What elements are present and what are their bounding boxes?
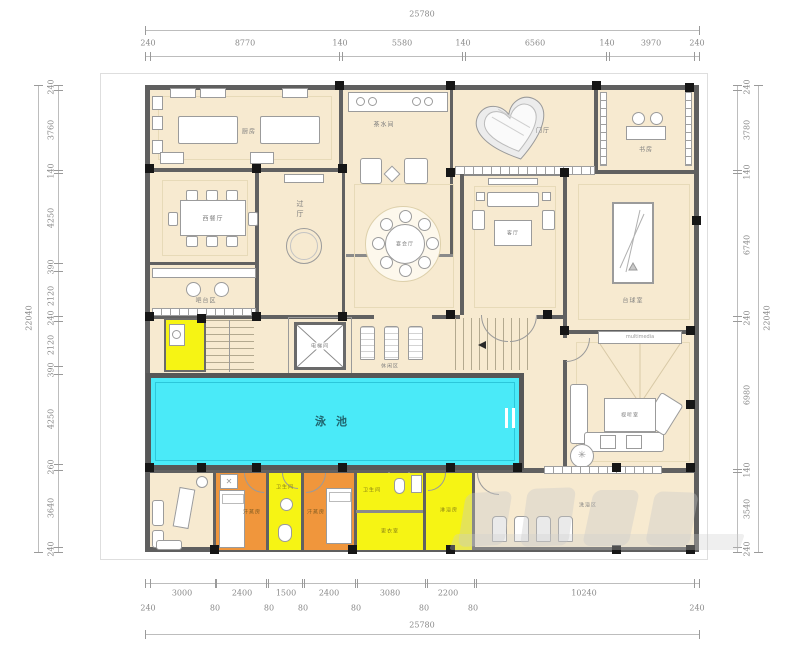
dim-bottom-wall: 240 bbox=[140, 604, 155, 613]
dim-top-total: 25780 bbox=[409, 10, 434, 19]
room-label-wc: 卫生间 bbox=[363, 487, 381, 494]
plant bbox=[196, 476, 208, 488]
dim-tick bbox=[150, 52, 151, 61]
column bbox=[446, 168, 455, 177]
pool-ladder bbox=[505, 408, 508, 428]
floor-plan-sheet: 25780 240 8770 140 5580 140 6560 140 397… bbox=[0, 0, 800, 666]
theater-seat bbox=[600, 435, 616, 449]
stair-divider bbox=[229, 320, 230, 372]
dim-top-seg: 140 bbox=[599, 39, 614, 48]
room-label-billiards: 台球室 bbox=[622, 296, 643, 305]
pool-lounger bbox=[360, 326, 375, 360]
room-label-pantry: 茶水间 bbox=[373, 120, 394, 129]
column bbox=[592, 81, 601, 90]
round-rug-inner bbox=[290, 232, 318, 260]
dim-left-seg: 2120 bbox=[47, 335, 56, 355]
dim-right-total: 22040 bbox=[763, 305, 772, 330]
dim-tick bbox=[266, 579, 267, 588]
dim-tick bbox=[54, 90, 63, 91]
dim-tick bbox=[145, 26, 146, 35]
dim-tick bbox=[34, 552, 43, 553]
wall bbox=[460, 174, 464, 315]
dim-tick bbox=[733, 547, 742, 548]
column bbox=[197, 314, 206, 323]
dim-bottom-wall: 240 bbox=[689, 604, 704, 613]
kitchen-sink bbox=[250, 152, 274, 164]
dim-tick bbox=[54, 547, 63, 548]
dim-bottom-room: 2200 bbox=[438, 589, 458, 598]
floor-lamp bbox=[542, 192, 551, 201]
dim-top-seg: 240 bbox=[689, 39, 704, 48]
bath-chair bbox=[536, 516, 551, 542]
dim-left-seg: 3640 bbox=[47, 498, 56, 518]
dim-right-seg: 240 bbox=[743, 310, 752, 325]
projection-lines bbox=[598, 344, 682, 404]
wall bbox=[339, 90, 343, 170]
pool-ladder bbox=[512, 408, 515, 428]
dim-tick bbox=[54, 321, 63, 322]
dim-tick bbox=[304, 579, 305, 588]
dim-bottom-room: 3080 bbox=[380, 589, 400, 598]
dim-left-seg: 4250 bbox=[47, 208, 56, 228]
dim-bottom-total: 25780 bbox=[409, 621, 434, 630]
kitchen-island bbox=[260, 116, 320, 144]
dim-top-seg: 240 bbox=[140, 39, 155, 48]
area-label-bathing: 洗浴区 bbox=[579, 502, 597, 509]
area-label-lounge: 休闲区 bbox=[381, 363, 399, 370]
dim-tick bbox=[145, 52, 146, 61]
dim-tick bbox=[54, 366, 63, 367]
wall bbox=[537, 315, 567, 319]
banquet-chair bbox=[418, 256, 431, 269]
banquet-chair bbox=[372, 237, 385, 250]
dim-tick bbox=[54, 85, 63, 86]
dim-line bbox=[145, 30, 699, 31]
room-label-pool: 泳池 bbox=[315, 413, 357, 429]
column bbox=[145, 312, 154, 321]
dim-right-seg: 140 bbox=[743, 462, 752, 477]
column bbox=[686, 545, 695, 554]
dim-tick bbox=[754, 552, 763, 553]
dim-line bbox=[758, 85, 759, 552]
room-label-theater: 视听室 bbox=[621, 412, 639, 419]
column bbox=[252, 463, 261, 472]
dim-tick bbox=[694, 579, 695, 588]
dim-left-seg: 3760 bbox=[47, 120, 56, 140]
dim-tick bbox=[699, 52, 700, 61]
bar-counter bbox=[152, 268, 256, 278]
kitchen-appliance bbox=[282, 88, 308, 98]
wall bbox=[342, 172, 345, 318]
dim-tick bbox=[54, 374, 63, 375]
dim-top-seg: 8770 bbox=[235, 39, 255, 48]
column bbox=[145, 164, 154, 173]
dim-tick bbox=[425, 579, 426, 588]
dim-right-seg: 6980 bbox=[743, 385, 752, 405]
column bbox=[692, 216, 701, 225]
floor-lamp bbox=[476, 192, 485, 201]
armchair bbox=[404, 158, 428, 184]
room-label-west-dining: 西餐厅 bbox=[202, 214, 223, 223]
dim-tick bbox=[699, 630, 700, 639]
dim-tick bbox=[54, 470, 63, 471]
room-label-locker: 更衣室 bbox=[381, 528, 399, 535]
dim-tick bbox=[465, 52, 466, 61]
dim-bottom-room: 2400 bbox=[232, 589, 252, 598]
dim-tick bbox=[609, 52, 610, 61]
dim-left-seg: 4250 bbox=[47, 409, 56, 429]
bath-chair bbox=[558, 516, 573, 542]
dim-right-seg: 240 bbox=[743, 541, 752, 556]
dim-left-seg: 390 bbox=[47, 259, 56, 274]
screen-label: multimedia bbox=[626, 334, 654, 340]
dim-tick bbox=[733, 472, 742, 473]
dining-chair bbox=[186, 236, 198, 247]
dim-top-seg: 140 bbox=[332, 39, 347, 48]
dim-line bbox=[737, 85, 738, 552]
dining-chair bbox=[206, 236, 218, 247]
sauna-pillow bbox=[329, 492, 351, 502]
bath-chair bbox=[514, 516, 529, 542]
column bbox=[446, 463, 455, 472]
wall bbox=[464, 174, 564, 176]
dim-tick bbox=[145, 579, 146, 588]
column bbox=[145, 463, 154, 472]
kitchen-appliance bbox=[200, 88, 226, 98]
sauna-table: ✕ bbox=[220, 474, 238, 489]
dim-line bbox=[145, 56, 699, 57]
banquet-chair bbox=[399, 264, 412, 277]
dim-left-seg: 140 bbox=[47, 163, 56, 178]
pool-lounger bbox=[384, 326, 399, 360]
room-label-bath-mid: 卫生间 bbox=[276, 484, 294, 491]
dim-tick bbox=[357, 579, 358, 588]
dim-left-seg: 240 bbox=[47, 541, 56, 556]
kitchen-island bbox=[178, 116, 238, 144]
room-label-shower: 淋浴房 bbox=[440, 507, 458, 514]
room-label-living: 客厅 bbox=[507, 230, 519, 237]
dim-bottom-room: 2400 bbox=[319, 589, 339, 598]
dim-tick bbox=[355, 579, 356, 588]
console-table bbox=[284, 174, 324, 183]
dim-bottom-room: 10240 bbox=[571, 589, 596, 598]
dim-line bbox=[145, 634, 699, 635]
bookshelf bbox=[685, 92, 692, 166]
column bbox=[446, 545, 455, 554]
room-label-passage: 过厅 bbox=[295, 200, 305, 220]
dim-top-seg: 3970 bbox=[641, 39, 661, 48]
tv-cabinet bbox=[488, 178, 538, 185]
wall bbox=[150, 168, 342, 172]
dim-tick bbox=[476, 579, 477, 588]
study-chair bbox=[632, 112, 645, 125]
lounge-sofa bbox=[156, 540, 182, 550]
column bbox=[686, 463, 695, 472]
column bbox=[543, 310, 552, 319]
column bbox=[252, 312, 261, 321]
column bbox=[252, 164, 261, 173]
billiard-cues bbox=[614, 204, 652, 282]
wash-basin bbox=[280, 498, 293, 511]
dim-bottom-wall: 80 bbox=[419, 604, 429, 613]
dim-top-seg: 140 bbox=[455, 39, 470, 48]
wash-stand bbox=[411, 475, 422, 493]
column bbox=[197, 463, 206, 472]
dim-tick bbox=[339, 52, 340, 61]
dim-tick bbox=[754, 85, 763, 86]
dim-tick bbox=[733, 552, 742, 553]
room-label-foyer: 门厅 bbox=[536, 126, 550, 135]
theater-seat bbox=[626, 435, 642, 449]
room-label-bar: 吧台区 bbox=[195, 296, 216, 305]
dim-line bbox=[38, 85, 39, 552]
dim-tick bbox=[216, 579, 217, 588]
column bbox=[338, 164, 347, 173]
fan-speaker: ✳ bbox=[570, 444, 594, 468]
column bbox=[685, 83, 694, 92]
room-label-sauna-left: 汗蒸房 bbox=[243, 509, 261, 516]
dim-tick bbox=[54, 170, 63, 171]
dim-tick bbox=[474, 579, 475, 588]
dim-top-seg: 6560 bbox=[525, 39, 545, 48]
column bbox=[338, 463, 347, 472]
wall bbox=[150, 262, 256, 265]
dim-tick bbox=[462, 52, 463, 61]
room-label-kitchen: 厨房 bbox=[242, 127, 256, 136]
cooktop-burner bbox=[424, 97, 433, 106]
wall bbox=[594, 90, 598, 172]
dim-tick bbox=[34, 85, 43, 86]
bath-chair bbox=[492, 516, 507, 542]
column bbox=[446, 310, 455, 319]
kitchen-appliance bbox=[170, 88, 196, 98]
dim-right-seg: 3540 bbox=[743, 499, 752, 519]
lounge-sofa bbox=[152, 500, 164, 526]
wall bbox=[563, 360, 567, 472]
dim-tick bbox=[145, 630, 146, 639]
dim-tick bbox=[302, 579, 303, 588]
dim-tick bbox=[733, 90, 742, 91]
toilet bbox=[394, 478, 405, 494]
dim-tick bbox=[54, 173, 63, 174]
cooktop-burner bbox=[412, 97, 421, 106]
dim-right-seg: 3780 bbox=[743, 120, 752, 140]
column bbox=[335, 81, 344, 90]
dim-top-seg: 5580 bbox=[392, 39, 412, 48]
dim-right-seg: 140 bbox=[743, 164, 752, 179]
banquet-chair bbox=[418, 218, 431, 231]
armchair bbox=[360, 158, 382, 184]
column bbox=[338, 312, 347, 321]
dim-tick bbox=[699, 26, 700, 35]
wall bbox=[563, 174, 567, 330]
dim-right-seg: 240 bbox=[743, 79, 752, 94]
dim-line bbox=[58, 85, 59, 552]
wall bbox=[594, 170, 699, 174]
study-chair bbox=[650, 112, 663, 125]
kitchen-sink bbox=[160, 152, 184, 164]
column bbox=[348, 545, 357, 554]
column bbox=[560, 326, 569, 335]
column bbox=[513, 463, 522, 472]
dim-tick bbox=[342, 52, 343, 61]
bookshelf bbox=[600, 92, 607, 166]
pool-lounger bbox=[408, 326, 423, 360]
dim-bottom-wall: 80 bbox=[298, 604, 308, 613]
banquet-chair bbox=[399, 210, 412, 223]
dim-tick bbox=[606, 52, 607, 61]
column bbox=[612, 545, 621, 554]
dim-tick bbox=[54, 552, 63, 553]
window bbox=[544, 466, 662, 474]
column bbox=[210, 545, 219, 554]
column bbox=[686, 400, 695, 409]
dim-tick bbox=[268, 579, 269, 588]
staircase bbox=[206, 320, 254, 372]
dining-chair bbox=[168, 212, 178, 226]
dim-bottom-wall: 80 bbox=[210, 604, 220, 613]
sauna-pillow bbox=[222, 494, 244, 504]
side-chair bbox=[542, 210, 555, 230]
dim-left-seg: 2120 bbox=[47, 286, 56, 306]
dim-left-seg: 260 bbox=[47, 459, 56, 474]
dim-tick bbox=[54, 263, 63, 264]
dim-bottom-wall: 80 bbox=[351, 604, 361, 613]
dim-tick bbox=[54, 316, 63, 317]
dim-left-seg: 390 bbox=[47, 362, 56, 377]
theater-sofa bbox=[584, 432, 664, 452]
wall bbox=[255, 172, 259, 318]
dim-left-seg: 240 bbox=[47, 79, 56, 94]
dim-tick bbox=[733, 469, 742, 470]
room-label-sauna-right: 汗蒸房 bbox=[307, 509, 325, 516]
cooktop-burner bbox=[356, 97, 365, 106]
dining-chair bbox=[226, 236, 238, 247]
dim-bottom-wall: 80 bbox=[468, 604, 478, 613]
dim-tick bbox=[699, 579, 700, 588]
dim-tick bbox=[54, 464, 63, 465]
dim-tick bbox=[733, 316, 742, 317]
toilet bbox=[278, 524, 292, 542]
utility-basin bbox=[172, 330, 181, 339]
cooktop-burner bbox=[368, 97, 377, 106]
kitchen-cabinet bbox=[152, 116, 163, 130]
dim-line bbox=[145, 583, 699, 584]
kitchen-cabinet bbox=[152, 96, 163, 110]
banquet-chair bbox=[426, 237, 439, 250]
dim-tick bbox=[54, 271, 63, 272]
room-label-study: 书房 bbox=[639, 145, 653, 154]
side-chair bbox=[472, 210, 485, 230]
sofa bbox=[487, 192, 539, 207]
dim-bottom-wall: 80 bbox=[264, 604, 274, 613]
column bbox=[612, 463, 621, 472]
dim-tick bbox=[694, 52, 695, 61]
dim-left-seg: 240 bbox=[47, 310, 56, 325]
room-label-elevator: 电梯间 bbox=[310, 343, 330, 350]
direction-arrow bbox=[478, 341, 486, 349]
room-label-banquet: 宴会厅 bbox=[396, 241, 414, 248]
dim-tick bbox=[733, 173, 742, 174]
column bbox=[446, 81, 455, 90]
dim-tick bbox=[150, 579, 151, 588]
dim-tick bbox=[733, 170, 742, 171]
wall bbox=[472, 472, 475, 550]
column bbox=[560, 168, 569, 177]
dining-chair bbox=[248, 212, 258, 226]
dim-tick bbox=[733, 321, 742, 322]
dim-left-total: 22040 bbox=[25, 305, 34, 330]
dim-bottom-room: 3000 bbox=[172, 589, 192, 598]
study-table bbox=[626, 126, 666, 140]
column bbox=[686, 326, 695, 335]
dim-tick bbox=[733, 85, 742, 86]
dim-bottom-room: 1500 bbox=[276, 589, 296, 598]
dim-right-seg: 6740 bbox=[743, 235, 752, 255]
dim-tick bbox=[427, 579, 428, 588]
